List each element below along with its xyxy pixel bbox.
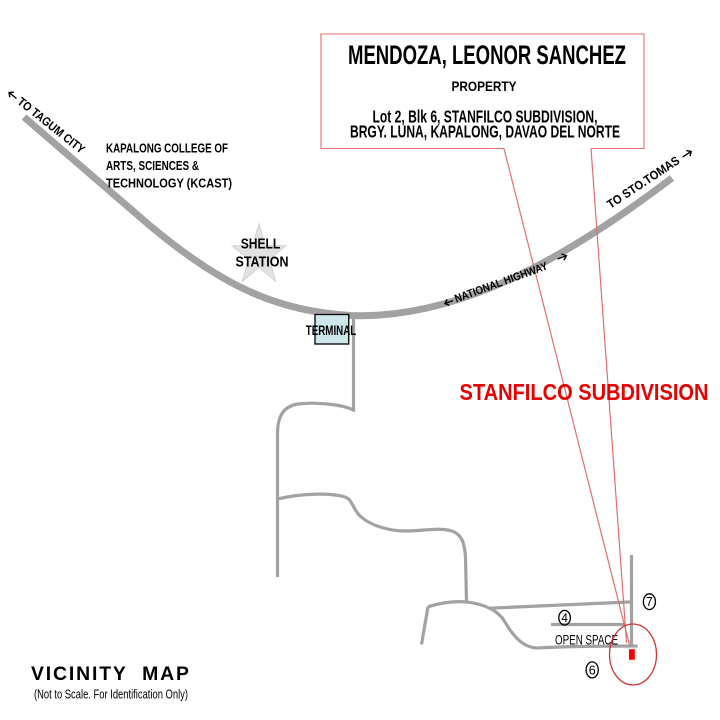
svg-text:7: 7 bbox=[646, 595, 653, 609]
svg-text:OPEN SPACE: OPEN SPACE bbox=[555, 633, 618, 648]
svg-text:STATION: STATION bbox=[236, 254, 289, 271]
svg-text:VICINITY MAP: VICINITY MAP bbox=[31, 663, 191, 685]
svg-text:BRGY. LUNA, KAPALONG, DAVAO DE: BRGY. LUNA, KAPALONG, DAVAO DEL NORTE bbox=[350, 122, 620, 142]
svg-text:STANFILCO SUBDIVISION: STANFILCO SUBDIVISION bbox=[460, 379, 709, 405]
svg-text:4: 4 bbox=[561, 611, 568, 625]
svg-text:ARTS, SCIENCES &: ARTS, SCIENCES & bbox=[106, 158, 199, 173]
svg-text:(Not to Scale. For Identificat: (Not to Scale. For Identification Only) bbox=[34, 687, 188, 701]
svg-text:KAPALONG COLLEGE OF: KAPALONG COLLEGE OF bbox=[106, 141, 228, 156]
svg-text:MENDOZA, LEONOR SANCHEZ: MENDOZA, LEONOR SANCHEZ bbox=[348, 40, 626, 70]
svg-text:TERMINAL: TERMINAL bbox=[306, 323, 357, 338]
svg-text:TECHNOLOGY (KCAST): TECHNOLOGY (KCAST) bbox=[106, 176, 232, 191]
svg-text:SHELL: SHELL bbox=[241, 236, 281, 253]
svg-text:PROPERTY: PROPERTY bbox=[452, 79, 517, 94]
svg-text:6: 6 bbox=[589, 663, 596, 677]
